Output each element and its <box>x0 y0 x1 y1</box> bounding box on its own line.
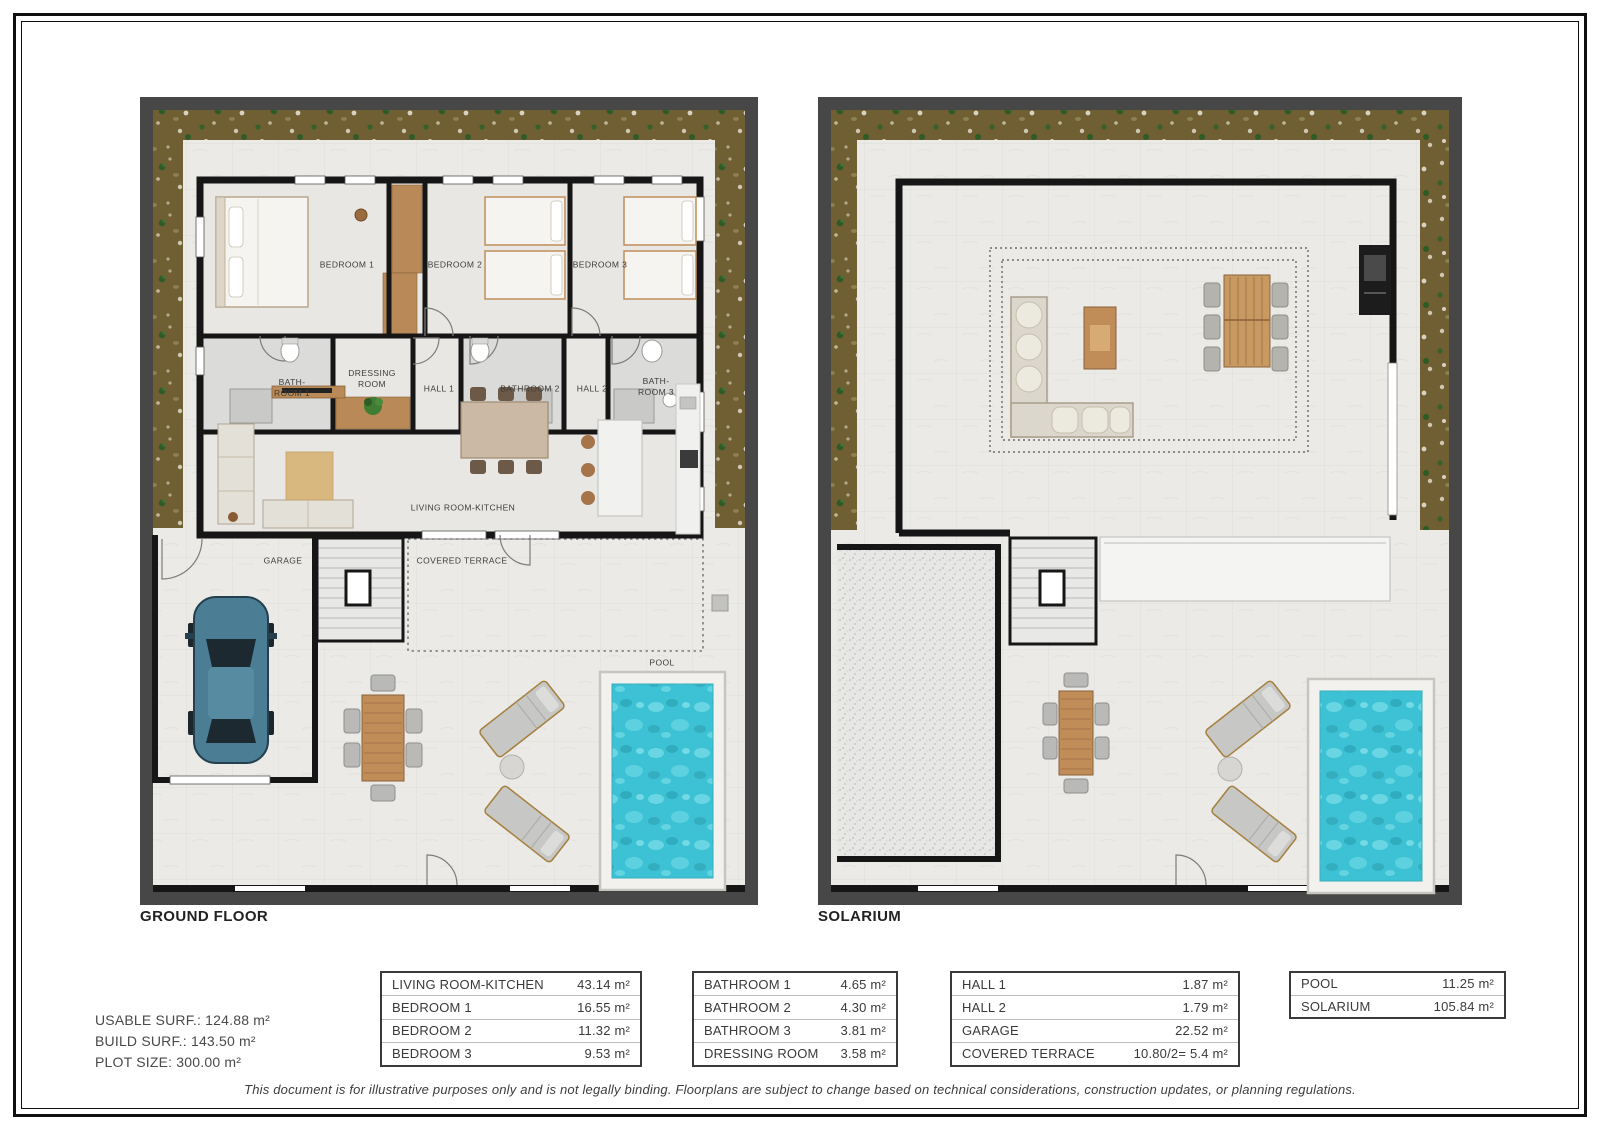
row-value: 16.55 m² <box>577 1000 630 1015</box>
room-label-bathroom2: BATHROOM 2 <box>500 383 560 394</box>
row-value: 10.80/2= 5.4 m² <box>1134 1046 1228 1061</box>
row-value: 22.52 m² <box>1175 1023 1228 1038</box>
row-label: BATHROOM 2 <box>704 1000 791 1015</box>
row-value: 11.32 m² <box>578 1023 630 1038</box>
row-label: HALL 2 <box>962 1000 1006 1015</box>
solarium-drawing <box>818 97 1462 905</box>
area-table-bathrooms: BATHROOM 14.65 m² BATHROOM 24.30 m² BATH… <box>692 971 898 1067</box>
side-table <box>1218 757 1242 781</box>
room-label-living-kitchen: LIVING ROOM-KITCHEN <box>411 502 515 513</box>
table-row: POOL11.25 m² <box>1291 973 1504 995</box>
room-label-covered-terrace: COVERED TERRACE <box>417 555 508 566</box>
side-table <box>500 755 524 779</box>
row-value: 105.84 m² <box>1434 999 1494 1014</box>
room-label-bedroom3: BEDROOM 3 <box>573 259 628 270</box>
room-label-bedroom2: BEDROOM 2 <box>428 259 483 270</box>
table-row: LIVING ROOM-KITCHEN43.14 m² <box>382 973 640 995</box>
utility-unit <box>712 595 728 611</box>
walkway <box>1100 537 1390 601</box>
kitchen-counter <box>676 384 700 534</box>
table-row: BEDROOM 39.53 m² <box>382 1042 640 1065</box>
row-label: BATHROOM 3 <box>704 1023 791 1038</box>
room-label-bathroom3: BATH- ROOM 3 <box>638 376 674 398</box>
room-label-pool: POOL <box>649 657 674 668</box>
pool <box>600 672 725 890</box>
room-label-hall1: HALL 1 <box>424 383 454 394</box>
dining-table <box>461 387 548 474</box>
floor-plan-ground: BEDROOM 1 BEDROOM 2 BEDROOM 3 BATH- ROOM… <box>140 97 758 905</box>
row-label: POOL <box>1301 976 1338 991</box>
area-table-halls-garage: HALL 11.87 m² HALL 21.79 m² GARAGE22.52 … <box>950 971 1240 1067</box>
table-row: BATHROOM 33.81 m² <box>694 1019 896 1042</box>
table-row: HALL 11.87 m² <box>952 973 1238 995</box>
table-row: HALL 21.79 m² <box>952 995 1238 1018</box>
table-row: GARAGE22.52 m² <box>952 1019 1238 1042</box>
row-value: 4.65 m² <box>841 977 886 992</box>
plot-size: PLOT SIZE: 300.00 m² <box>95 1052 270 1073</box>
row-value: 3.81 m² <box>841 1023 886 1038</box>
row-label: LIVING ROOM-KITCHEN <box>392 977 544 992</box>
bbq-unit <box>1359 245 1391 315</box>
area-table-main-rooms: LIVING ROOM-KITCHEN43.14 m² BEDROOM 116.… <box>380 971 642 1067</box>
solarium-title: SOLARIUM <box>818 908 901 925</box>
row-value: 4.30 m² <box>841 1000 886 1015</box>
room-label-garage: GARAGE <box>264 555 303 566</box>
coffee-table <box>1084 307 1116 369</box>
row-value: 3.58 m² <box>841 1046 886 1061</box>
solarium-dining-set <box>1204 275 1288 371</box>
row-value: 1.87 m² <box>1183 977 1228 992</box>
gravel-roof-area <box>837 547 998 859</box>
table-row: COVERED TERRACE10.80/2= 5.4 m² <box>952 1042 1238 1065</box>
row-label: BEDROOM 1 <box>392 1000 472 1015</box>
row-label: BATHROOM 1 <box>704 977 791 992</box>
row-value: 11.25 m² <box>1442 976 1494 991</box>
floorplan-document: BEDROOM 1 BEDROOM 2 BEDROOM 3 BATH- ROOM… <box>0 0 1600 1130</box>
row-value: 9.53 m² <box>585 1046 630 1061</box>
area-table-pool-solarium: POOL11.25 m² SOLARIUM105.84 m² <box>1289 971 1506 1019</box>
floor-plan-solarium <box>818 97 1462 905</box>
row-label: COVERED TERRACE <box>962 1046 1095 1061</box>
row-label: BEDROOM 2 <box>392 1023 472 1038</box>
staircase <box>317 538 403 641</box>
row-label: BEDROOM 3 <box>392 1046 472 1061</box>
room-label-bedroom1: BEDROOM 1 <box>320 259 375 270</box>
table-row: BEDROOM 211.32 m² <box>382 1019 640 1042</box>
row-label: DRESSING ROOM <box>704 1046 819 1061</box>
staircase <box>1010 538 1096 644</box>
legal-disclaimer: This document is for illustrative purpos… <box>0 1082 1600 1097</box>
table-row: BATHROOM 24.30 m² <box>694 995 896 1018</box>
surface-stats: USABLE SURF.: 124.88 m² BUILD SURF.: 143… <box>95 1010 270 1073</box>
ground-floor-drawing <box>140 97 758 905</box>
row-label: GARAGE <box>962 1023 1019 1038</box>
garage-car <box>185 597 277 763</box>
build-surface: BUILD SURF.: 143.50 m² <box>95 1031 270 1052</box>
row-label: SOLARIUM <box>1301 999 1371 1014</box>
table-row: SOLARIUM105.84 m² <box>1291 995 1504 1018</box>
room-label-dressing-room: DRESSING ROOM <box>348 368 396 390</box>
room-label-hall2: HALL 2 <box>577 383 607 394</box>
usable-surface: USABLE SURF.: 124.88 m² <box>95 1010 270 1031</box>
table-row: BEDROOM 116.55 m² <box>382 995 640 1018</box>
ground-floor-title: GROUND FLOOR <box>140 908 268 925</box>
row-label: HALL 1 <box>962 977 1006 992</box>
table-row: DRESSING ROOM3.58 m² <box>694 1042 896 1065</box>
glass-balustrade <box>1388 363 1397 515</box>
row-value: 1.79 m² <box>1183 1000 1228 1015</box>
pool <box>1308 679 1434 893</box>
row-value: 43.14 m² <box>577 977 630 992</box>
table-row: BATHROOM 14.65 m² <box>694 973 896 995</box>
room-label-bathroom1: BATH- ROOM 1 <box>274 377 310 399</box>
